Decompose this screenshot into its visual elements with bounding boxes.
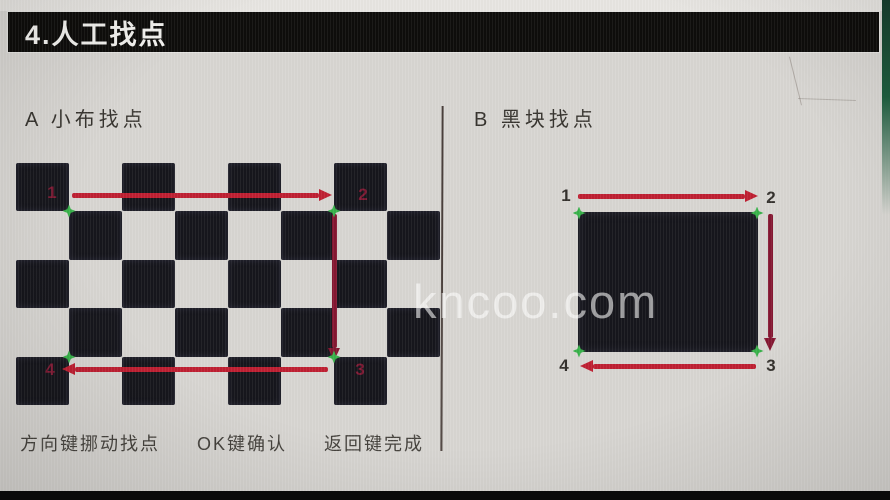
checker-cell	[122, 260, 175, 308]
checkerboard-point-label-2: 2	[358, 185, 367, 205]
checker-cell	[122, 163, 175, 211]
block-path-2-arrow-line	[768, 214, 773, 338]
checker-cell	[228, 357, 281, 405]
checker-cell	[281, 308, 334, 356]
block-point-label-3: 3	[766, 356, 775, 376]
bottom-edge-bar	[0, 491, 890, 500]
checker-cell	[16, 163, 69, 211]
hint-ok-key: OK键确认	[197, 430, 287, 456]
section-b-header: B 黑块找点	[474, 103, 597, 132]
block-path-3-arrow-line	[593, 364, 756, 369]
checker-cell	[175, 308, 228, 356]
calibration-screen: 4.人工找点 A 小布找点 B 黑块找点 12341234 kncoo.com …	[0, 0, 890, 500]
screen-edge-green-strip	[882, 0, 890, 215]
title-bar: 4.人工找点	[8, 12, 879, 52]
checker-cell	[69, 211, 122, 259]
photo-scratch-artifact-2	[798, 98, 856, 101]
hint-back-key: 返回键完成	[324, 430, 424, 456]
checker-cell	[122, 357, 175, 405]
block-point-label-1: 1	[561, 186, 570, 206]
checkerboard-path-2-arrow-line	[332, 214, 337, 348]
block-path-1-arrow-head-right	[745, 190, 758, 202]
checkerboard-path-1-arrow-head-right	[319, 189, 332, 201]
checker-cell	[228, 163, 281, 211]
page-title: 4.人工找点	[25, 13, 168, 52]
checkerboard-point-label-3: 3	[355, 360, 364, 380]
section-a-header: A 小布找点	[25, 103, 147, 132]
checker-cell	[69, 308, 122, 356]
block-point-label-2: 2	[766, 188, 775, 208]
top-edge-strip	[0, 0, 890, 11]
checker-cell	[281, 211, 334, 259]
watermark: kncoo.com	[413, 274, 658, 329]
block-path-3-arrow-head-left	[580, 360, 593, 372]
checkerboard-path-1-arrow-line	[72, 193, 319, 198]
checker-cell	[16, 260, 69, 308]
checkerboard-point-label-1: 1	[47, 183, 56, 203]
key-hints: 方向键挪动找点 OK键确认 返回键完成	[20, 430, 424, 456]
block-path-1-arrow-line	[578, 194, 745, 199]
checker-cell	[334, 260, 387, 308]
checkerboard-path-3-arrow-head-left	[62, 363, 75, 375]
checkerboard-point-label-4: 4	[45, 360, 54, 380]
checker-cell	[175, 211, 228, 259]
checker-cell	[228, 260, 281, 308]
checkerboard-path-3-arrow-line	[75, 367, 328, 372]
checker-cell	[387, 211, 440, 259]
block-point-label-4: 4	[559, 356, 568, 376]
block-path-2-arrow-head-down	[764, 338, 776, 351]
hint-arrow-keys: 方向键挪动找点	[20, 430, 160, 456]
